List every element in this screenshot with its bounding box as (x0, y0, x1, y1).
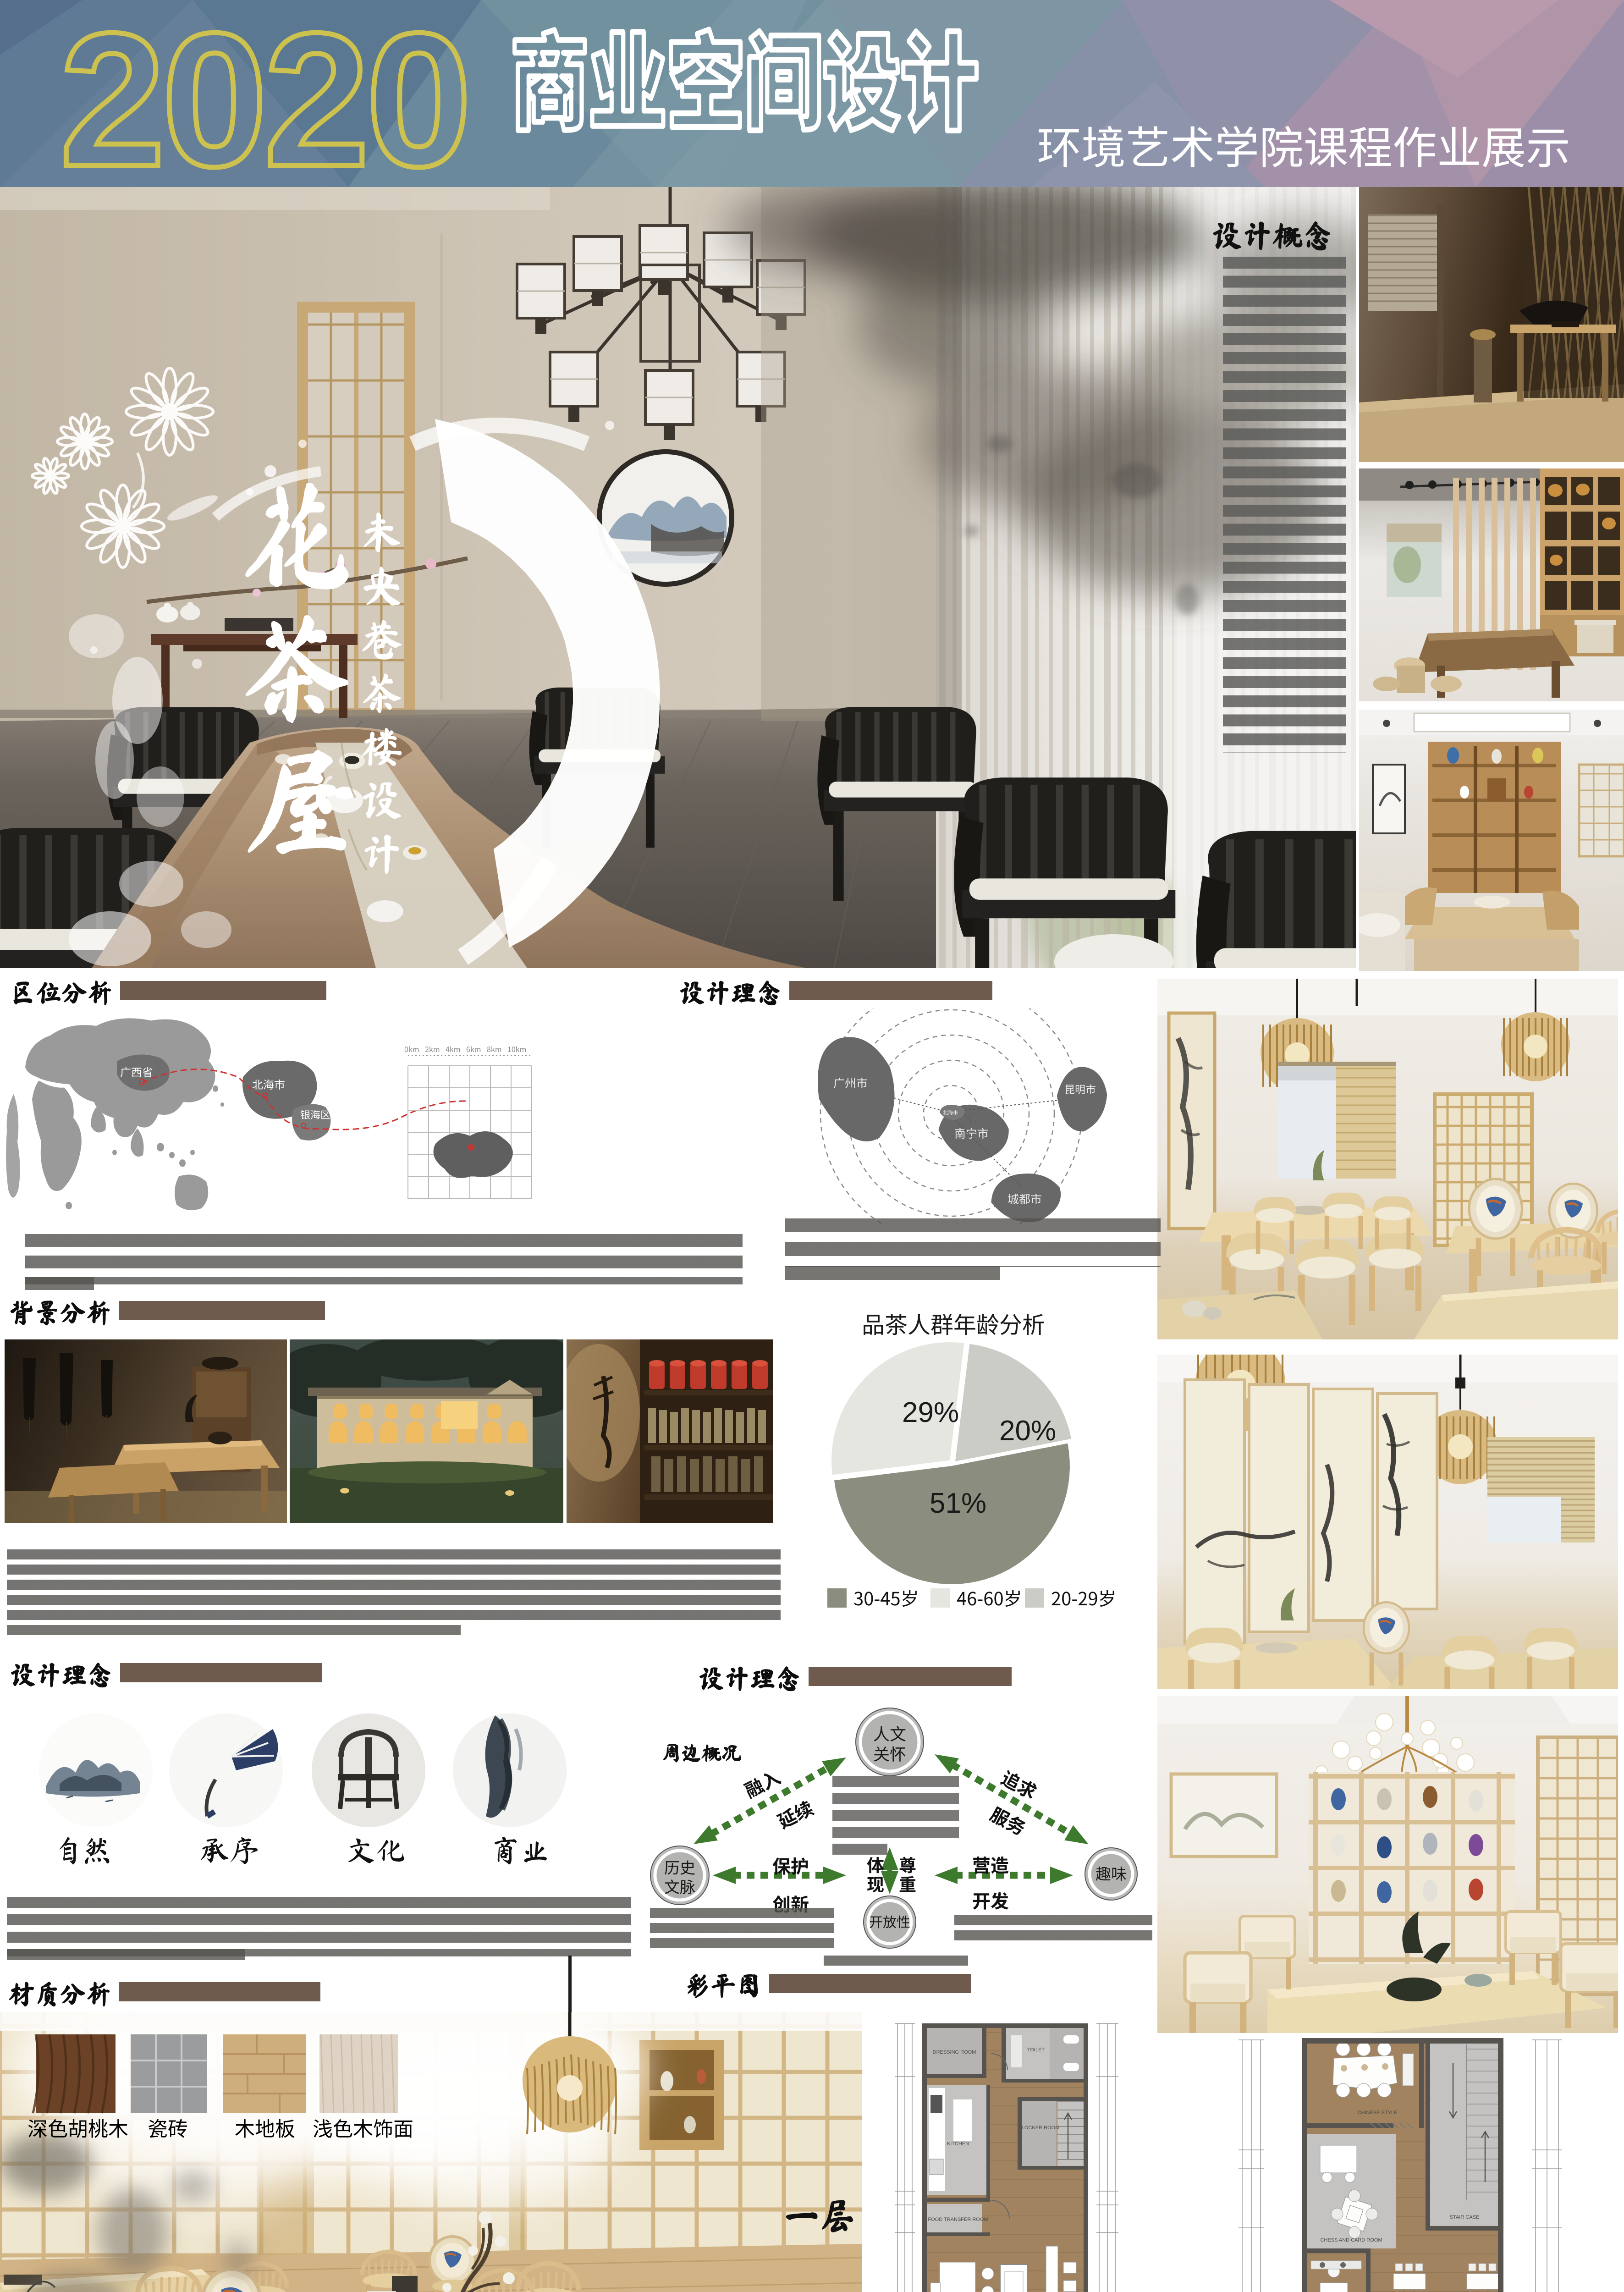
svg-text:DRESSING ROOM: DRESSING ROOM (933, 2050, 976, 2055)
svg-text:CHINESE STYLE: CHINESE STYLE (1358, 2110, 1398, 2116)
svg-text:CHESS AND CARD ROOM: CHESS AND CARD ROOM (1320, 2237, 1382, 2243)
svg-text:STAIR CASE: STAIR CASE (1450, 2215, 1480, 2220)
svg-text:20%: 20% (999, 1415, 1056, 1447)
svg-text:29%: 29% (902, 1397, 959, 1428)
svg-text:51%: 51% (930, 1488, 986, 1519)
svg-text:TOILET: TOILET (1027, 2047, 1045, 2053)
svg-text:LOCKER ROOM: LOCKER ROOM (1022, 2125, 1060, 2131)
svg-text:KITCHEN: KITCHEN (947, 2141, 969, 2147)
svg-text:FOOD TRANSFER ROOM: FOOD TRANSFER ROOM (928, 2217, 988, 2222)
